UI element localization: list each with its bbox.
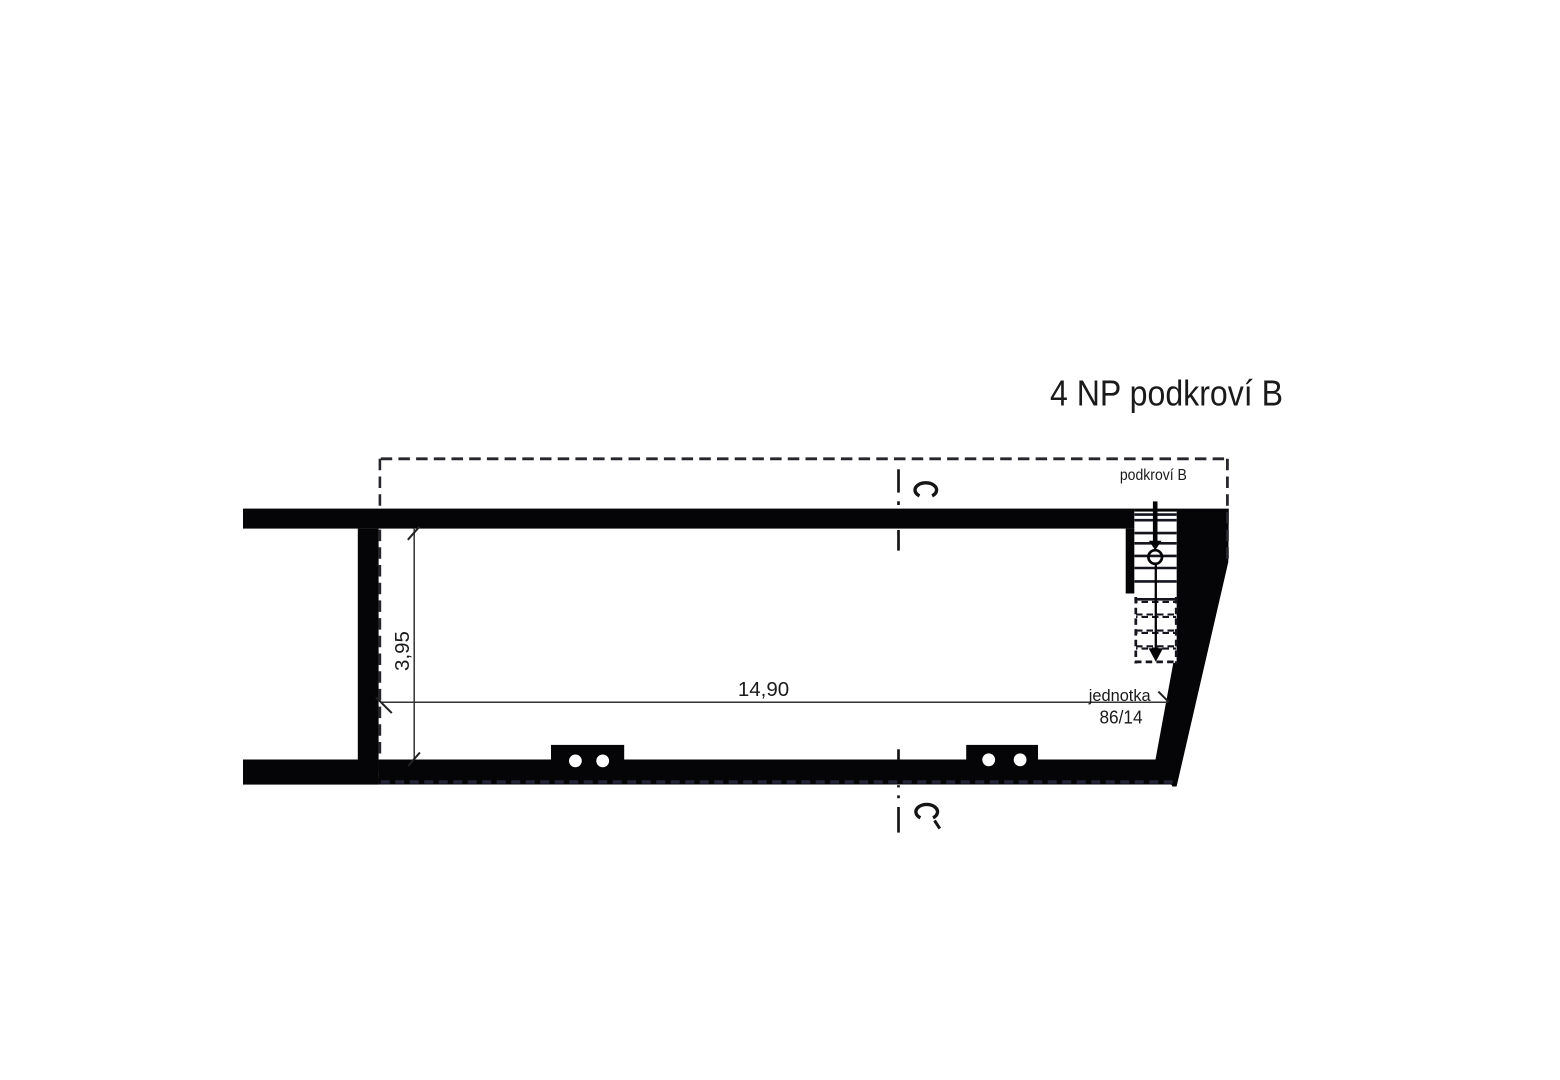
svg-text:4 NP podkroví B: 4 NP podkroví B [1050,374,1283,414]
svg-text:podkroví B: podkroví B [1120,467,1187,484]
svg-text:jednotka: jednotka [1088,686,1151,705]
svg-text:86/14: 86/14 [1100,707,1143,728]
svg-text:3,95: 3,95 [391,631,414,671]
svg-text:14,90: 14,90 [738,678,789,701]
